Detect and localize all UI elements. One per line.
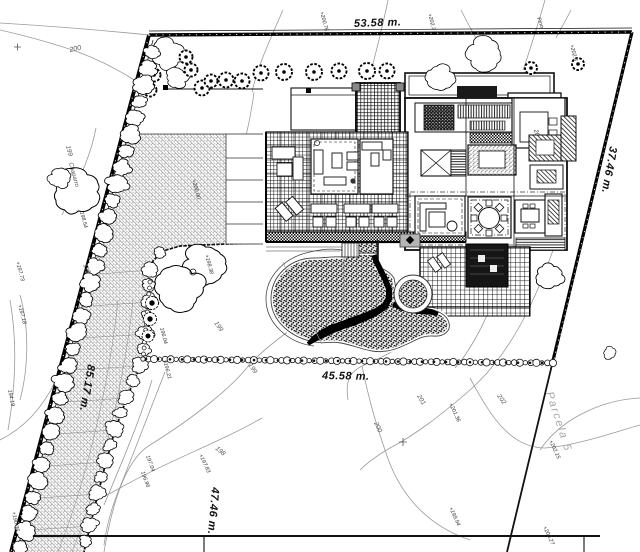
svg-text:53.58 m.: 53.58 m. (354, 16, 402, 30)
svg-text:45.58 m.: 45.58 m. (321, 370, 370, 383)
